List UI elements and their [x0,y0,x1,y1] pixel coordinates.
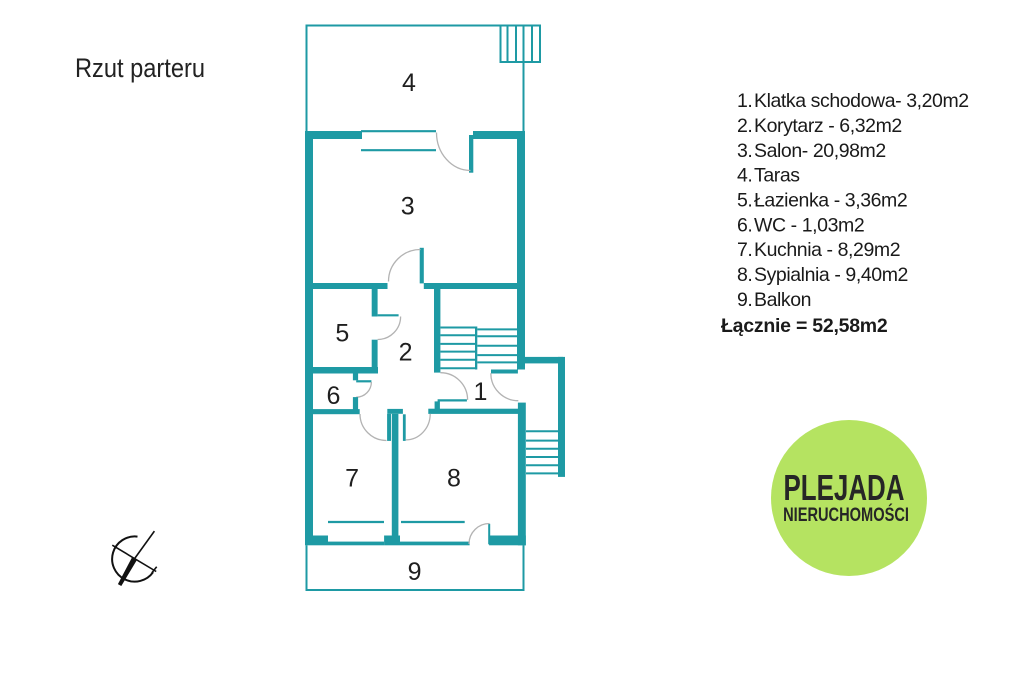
svg-text:9: 9 [408,558,422,586]
svg-text:9.: 9. [737,289,752,311]
svg-text:4: 4 [402,69,416,97]
svg-text:8: 8 [447,465,461,493]
svg-text:2: 2 [399,338,413,366]
svg-text:3: 3 [401,193,415,221]
svg-text:6: 6 [327,382,341,410]
svg-text:4.: 4. [737,165,752,187]
svg-text:7.: 7. [737,239,752,261]
svg-text:5.: 5. [737,190,752,212]
svg-text:1.: 1. [737,90,752,112]
svg-text:Rzut parteru: Rzut parteru [75,53,205,83]
svg-text:PLEJADA: PLEJADA [784,468,905,508]
svg-text:Korytarz - 6,32m2: Korytarz - 6,32m2 [754,115,902,137]
svg-text:Łącznie = 52,58m2: Łącznie = 52,58m2 [721,315,888,337]
svg-text:7: 7 [345,465,359,493]
svg-text:Kuchnia - 8,29m2: Kuchnia - 8,29m2 [754,239,900,261]
svg-text:6.: 6. [737,214,752,236]
svg-text:2.: 2. [737,115,752,137]
svg-text:8.: 8. [737,264,752,286]
svg-text:Łazienka - 3,36m2: Łazienka - 3,36m2 [754,190,907,212]
svg-text:Salon- 20,98m2: Salon- 20,98m2 [754,140,886,162]
svg-text:Sypialnia - 9,40m2: Sypialnia - 9,40m2 [754,264,908,286]
svg-text:Balkon: Balkon [754,289,811,311]
svg-text:3.: 3. [737,140,752,162]
svg-text:Taras: Taras [754,165,800,187]
svg-text:NIERUCHOMOŚCI: NIERUCHOMOŚCI [783,504,909,525]
svg-text:Klatka schodowa- 3,20m2: Klatka schodowa- 3,20m2 [754,90,969,112]
svg-text:1: 1 [474,378,488,406]
svg-text:WC - 1,03m2: WC - 1,03m2 [754,214,864,236]
svg-text:5: 5 [335,320,349,348]
